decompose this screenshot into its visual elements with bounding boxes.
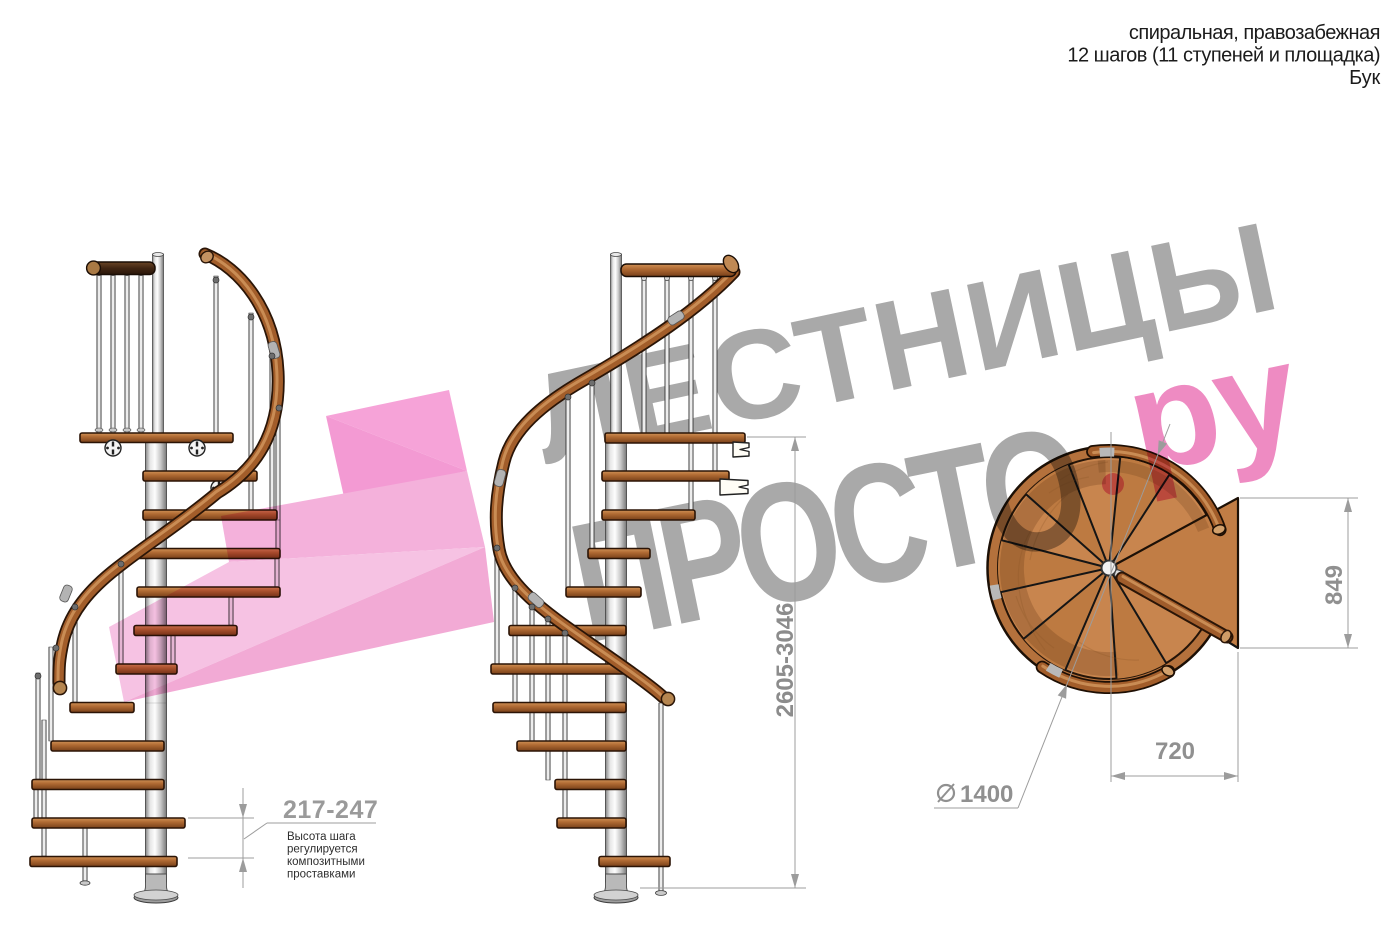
svg-text:Высота шага: Высота шага <box>287 831 356 843</box>
svg-text:проставками: проставками <box>287 869 355 881</box>
svg-text:1400: 1400 <box>960 781 1013 808</box>
svg-text:12 шагов (11 ступеней и площад: 12 шагов (11 ступеней и площадка) <box>1067 45 1380 67</box>
svg-text:Бук: Бук <box>1349 67 1380 89</box>
svg-text:спиральная, правозабежная: спиральная, правозабежная <box>1129 22 1380 44</box>
svg-text:2605-3046: 2605-3046 <box>772 603 799 718</box>
svg-text:849: 849 <box>1321 565 1348 605</box>
svg-text:регулируется: регулируется <box>287 844 358 856</box>
svg-text:217-247: 217-247 <box>283 796 378 824</box>
svg-text:композитными: композитными <box>287 856 365 868</box>
svg-text:720: 720 <box>1155 738 1195 765</box>
svg-text:ру: ру <box>1114 310 1313 504</box>
